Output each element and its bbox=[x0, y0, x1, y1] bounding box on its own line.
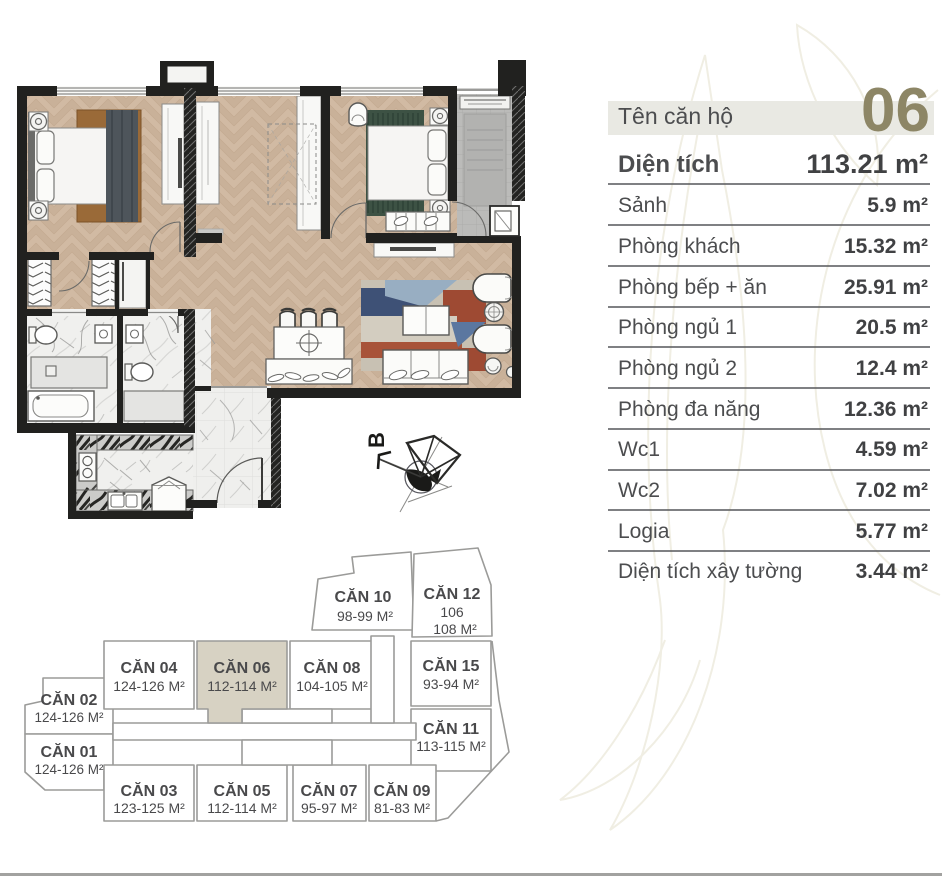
svg-text:104-105 M²: 104-105 M² bbox=[296, 678, 368, 694]
svg-text:124-126 M²: 124-126 M² bbox=[113, 678, 185, 694]
svg-text:81-83 M²: 81-83 M² bbox=[374, 800, 430, 816]
svg-text:106: 106 bbox=[440, 604, 464, 620]
svg-text:112-114 M²: 112-114 M² bbox=[207, 800, 277, 816]
svg-text:CĂN 05: CĂN 05 bbox=[214, 781, 271, 800]
svg-text:112-114 M²: 112-114 M² bbox=[207, 678, 277, 694]
svg-text:4.59 m²: 4.59 m² bbox=[856, 438, 928, 461]
svg-text:Phòng đa năng: Phòng đa năng bbox=[618, 398, 760, 421]
svg-text:15.32 m²: 15.32 m² bbox=[844, 235, 928, 258]
svg-text:Diện tích xây tường: Diện tích xây tường bbox=[618, 560, 802, 583]
svg-text:Wc2: Wc2 bbox=[618, 479, 660, 502]
svg-text:20.5 m²: 20.5 m² bbox=[856, 316, 928, 339]
svg-text:113.21 m²: 113.21 m² bbox=[806, 149, 928, 179]
svg-text:CĂN 01: CĂN 01 bbox=[41, 742, 98, 761]
svg-text:Logia: Logia bbox=[618, 520, 670, 543]
svg-text:CĂN 07: CĂN 07 bbox=[301, 781, 358, 800]
svg-text:3.44 m²: 3.44 m² bbox=[856, 560, 928, 583]
svg-text:Diện tích: Diện tích bbox=[618, 151, 719, 178]
svg-text:12.4 m²: 12.4 m² bbox=[856, 357, 928, 380]
svg-text:CĂN 03: CĂN 03 bbox=[121, 781, 178, 800]
svg-text:12.36 m²: 12.36 m² bbox=[844, 398, 928, 421]
svg-text:CĂN 04: CĂN 04 bbox=[121, 658, 178, 677]
svg-text:95-97 M²: 95-97 M² bbox=[301, 800, 357, 816]
svg-text:93-94 M²: 93-94 M² bbox=[423, 676, 479, 692]
svg-text:5.77 m²: 5.77 m² bbox=[856, 520, 928, 543]
svg-text:Phòng ngủ 1: Phòng ngủ 1 bbox=[618, 316, 737, 339]
svg-text:CĂN 06: CĂN 06 bbox=[214, 658, 271, 677]
svg-text:CĂN 02: CĂN 02 bbox=[41, 690, 98, 709]
svg-text:CĂN 09: CĂN 09 bbox=[374, 781, 431, 800]
svg-text:CĂN 10: CĂN 10 bbox=[335, 587, 392, 606]
svg-text:Tên căn hộ: Tên căn hộ bbox=[618, 103, 733, 129]
svg-text:CĂN 11: CĂN 11 bbox=[423, 719, 479, 738]
svg-text:7.02 m²: 7.02 m² bbox=[856, 479, 928, 502]
svg-text:113-115 M²: 113-115 M² bbox=[416, 738, 486, 754]
svg-text:98-99 M²: 98-99 M² bbox=[337, 608, 393, 624]
svg-text:06: 06 bbox=[861, 76, 930, 145]
svg-text:Phòng khách: Phòng khách bbox=[618, 235, 741, 258]
svg-text:108 M²: 108 M² bbox=[433, 621, 477, 637]
svg-text:B: B bbox=[364, 432, 389, 448]
svg-text:Sảnh: Sảnh bbox=[618, 194, 667, 217]
svg-text:CĂN 12: CĂN 12 bbox=[424, 584, 481, 603]
svg-text:Wc1: Wc1 bbox=[618, 438, 660, 461]
svg-text:Phòng ngủ 2: Phòng ngủ 2 bbox=[618, 357, 737, 380]
svg-text:Phòng bếp + ăn: Phòng bếp + ăn bbox=[618, 276, 767, 299]
svg-text:25.91 m²: 25.91 m² bbox=[844, 276, 928, 299]
svg-text:CĂN 08: CĂN 08 bbox=[304, 658, 361, 677]
svg-text:5.9 m²: 5.9 m² bbox=[867, 194, 928, 217]
svg-text:123-125 M²: 123-125 M² bbox=[113, 800, 185, 816]
svg-text:CĂN 15: CĂN 15 bbox=[423, 656, 480, 675]
svg-text:124-126 M²: 124-126 M² bbox=[34, 710, 104, 725]
svg-text:124-126 M²: 124-126 M² bbox=[34, 762, 104, 777]
